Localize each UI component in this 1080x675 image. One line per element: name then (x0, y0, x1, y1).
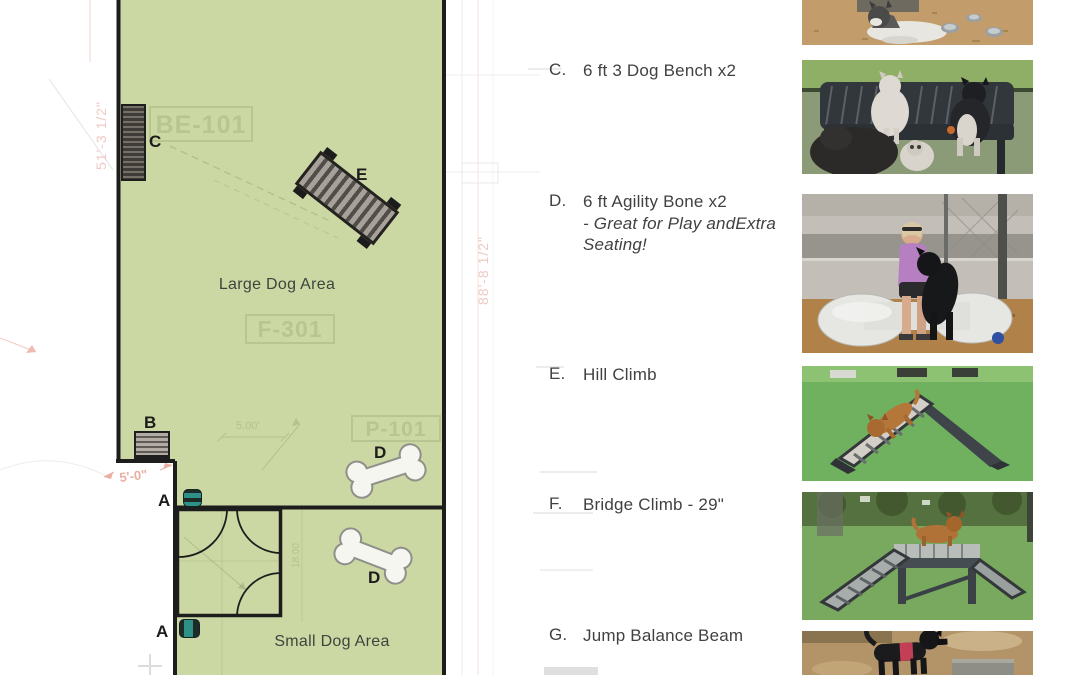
ref-label-f-301: F-301 (246, 315, 334, 343)
dog-hill-climb-photo (802, 366, 1033, 481)
husky-dog-water-bowls-photo (802, 0, 1033, 45)
dimension-left-vertical: 51'-3 1/2" (93, 101, 109, 170)
svg-text:P-101: P-101 (365, 418, 426, 441)
legend-item-d: D. 6 ft Agility Bone x2 - Great for Play… (549, 191, 808, 256)
woman-dog-bone-bench-photo (802, 194, 1033, 353)
faint-bar (544, 667, 598, 675)
marker-a-bottom: A (156, 622, 168, 641)
ref-label-be-101: BE-101 (150, 107, 252, 141)
legend-label: Bridge Climb - 29" (583, 494, 808, 516)
legend-note: - Great for Play andExtra (583, 213, 808, 235)
legend-letter: D. (549, 191, 583, 256)
svg-text:BE-101: BE-101 (156, 111, 247, 139)
legend-item-e: E. Hill Climb (549, 364, 808, 386)
dimension-18ft: 18.00 (291, 543, 302, 568)
large-dog-area-label: Large Dog Area (219, 276, 335, 293)
svg-text:F-301: F-301 (257, 316, 322, 342)
legend-letter: E. (549, 364, 583, 386)
dimension-right-vertical: 88'-8 1/2" (475, 236, 491, 305)
marker-c: C (149, 132, 161, 151)
dog-balance-beam-photo (802, 631, 1033, 675)
small-dog-area-label: Small Dog Area (274, 633, 389, 650)
legend-label: Hill Climb (583, 364, 808, 386)
marker-b: B (144, 413, 156, 432)
marker-a-top: A (158, 491, 170, 510)
legend-letter: F. (549, 494, 583, 516)
dimension-5ft: 5.00' (236, 420, 260, 432)
legend-label: 6 ft 3 Dog Bench x2 (583, 60, 808, 82)
marker-d-large: D (374, 443, 386, 462)
marker-d-small: D (368, 568, 380, 587)
water-fountain-icon-bottom (179, 619, 200, 638)
faint-line (540, 471, 597, 473)
dog-park-plan-slide: 51'-3 1/2" 88'-8 1/2" 5.00' 18.00 BE-101 (0, 0, 1080, 675)
dog-bridge-climb-photo (802, 492, 1033, 620)
legend-label: Jump Balance Beam (583, 625, 808, 647)
dog-bench-icon-c (121, 104, 146, 181)
faint-line (540, 569, 593, 571)
svg-text:5'-0": 5'-0" (119, 467, 149, 485)
dog-bench-icon-b (134, 431, 170, 460)
dogs-on-bench-photo (802, 60, 1033, 174)
legend-item-g: G. Jump Balance Beam (549, 625, 808, 647)
site-plan: 51'-3 1/2" 88'-8 1/2" 5.00' 18.00 BE-101 (0, 0, 540, 675)
legend-item-f: F. Bridge Climb - 29" (549, 494, 808, 516)
legend-note: Seating! (583, 234, 808, 256)
legend-letter: C. (549, 60, 583, 82)
gate-dimension: 5'-0" (104, 463, 172, 485)
legend-item-c: C. 6 ft 3 Dog Bench x2 (549, 60, 808, 82)
legend-label: 6 ft Agility Bone x2 (583, 191, 808, 213)
water-fountain-icon-top (183, 489, 202, 507)
legend-letter: G. (549, 625, 583, 647)
